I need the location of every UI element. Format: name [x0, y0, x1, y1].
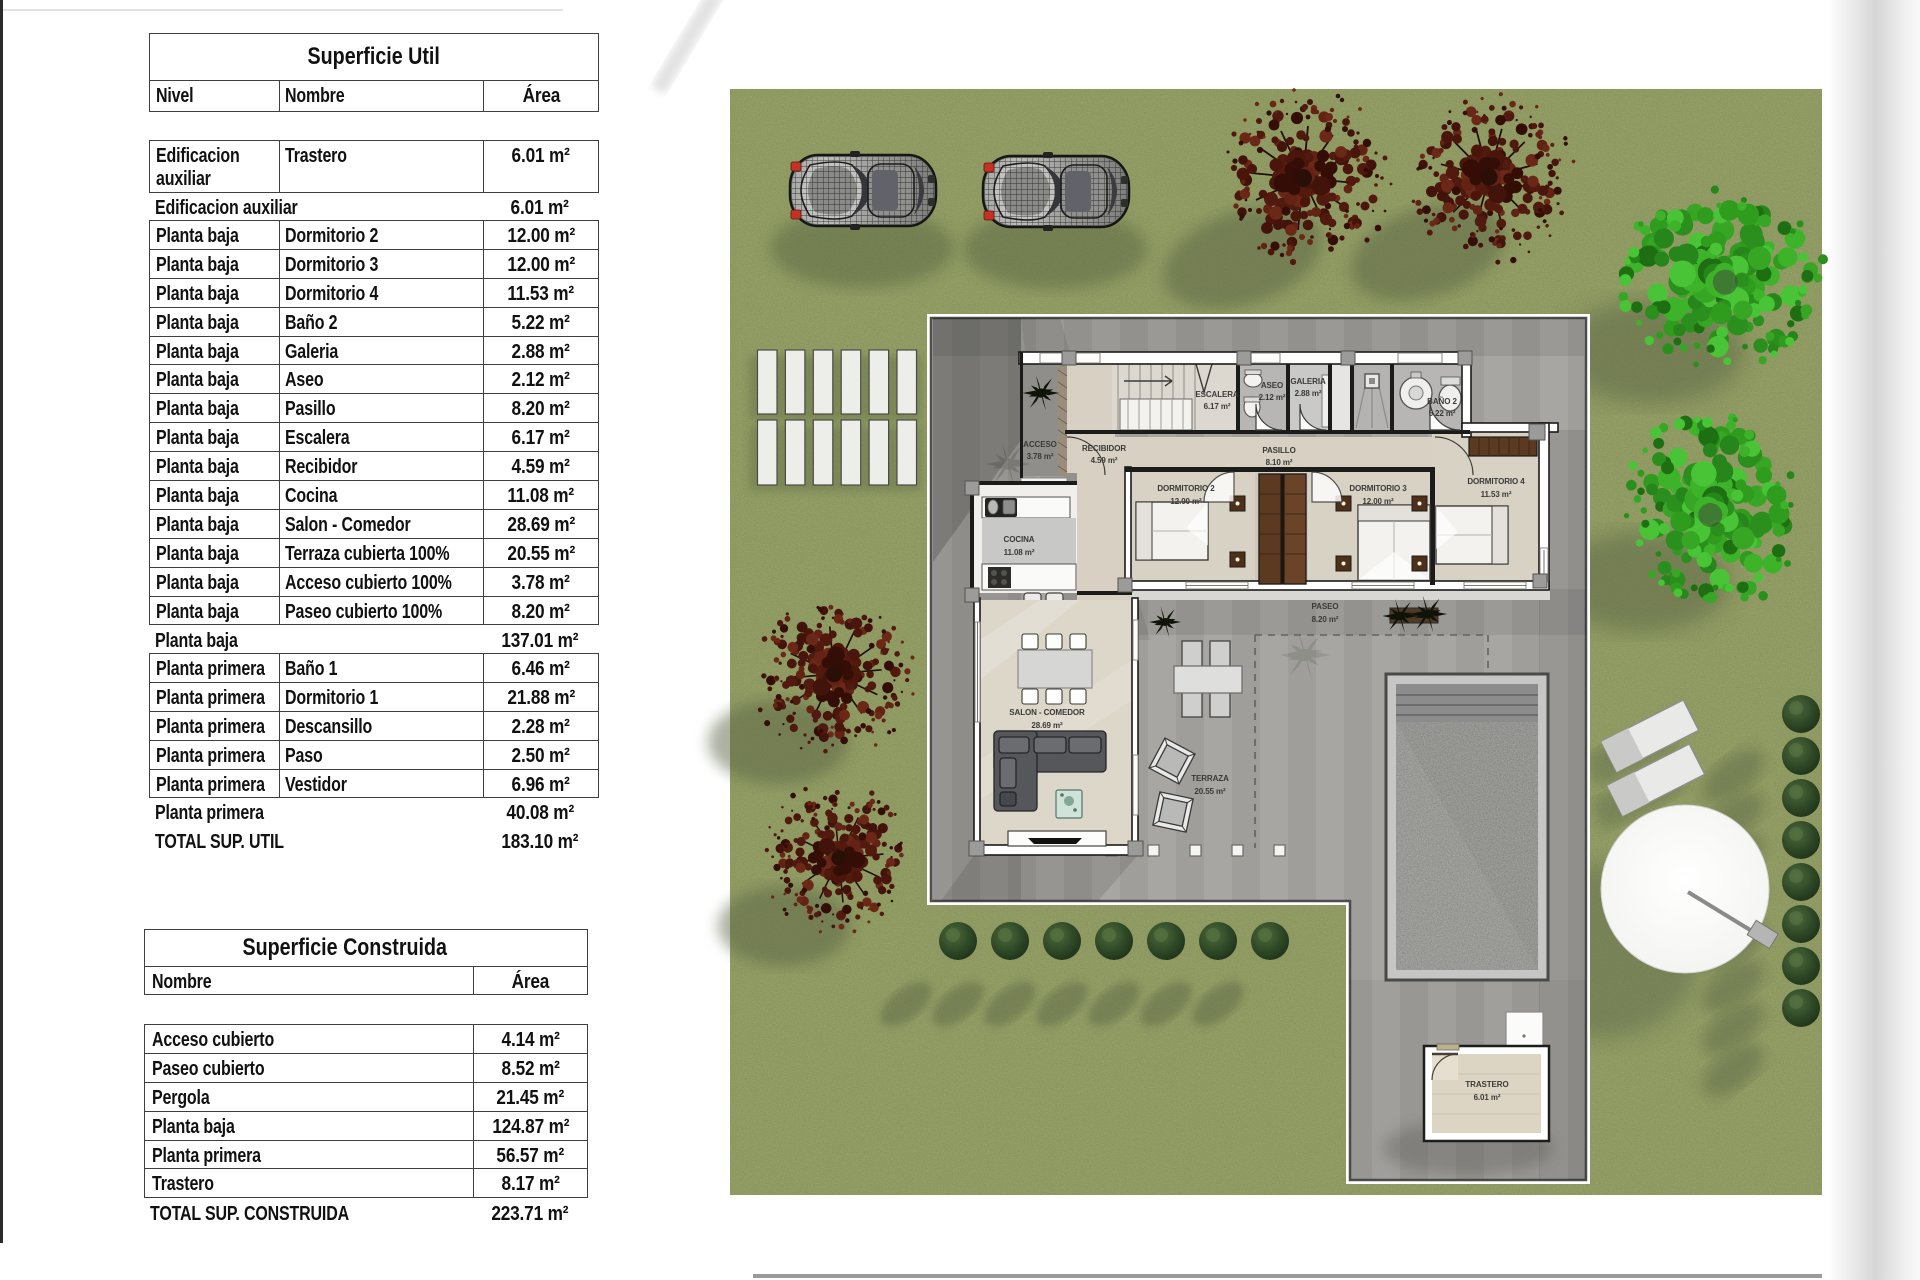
svg-text:SALON - COMEDOR: SALON - COMEDOR: [1009, 708, 1085, 717]
svg-text:11.53 m²: 11.53 m²: [1481, 490, 1512, 499]
svg-text:ACCESO: ACCESO: [1023, 440, 1057, 449]
svg-text:20.55 m²: 20.55 m²: [1194, 787, 1226, 796]
svg-text:PASEO: PASEO: [1312, 602, 1339, 611]
svg-text:3.78 m²: 3.78 m²: [1027, 452, 1054, 461]
svg-text:11.08 m²: 11.08 m²: [1004, 548, 1035, 557]
svg-text:ESCALERA: ESCALERA: [1195, 390, 1239, 399]
svg-text:ASEO: ASEO: [1261, 381, 1283, 390]
svg-text:8.10 m²: 8.10 m²: [1266, 458, 1293, 467]
svg-text:PASILLO: PASILLO: [1262, 446, 1295, 455]
svg-text:6.01 m²: 6.01 m²: [1474, 1093, 1501, 1102]
svg-text:TRASTERO: TRASTERO: [1465, 1080, 1508, 1089]
svg-text:BAÑO 2: BAÑO 2: [1427, 397, 1457, 406]
svg-text:6.17 m²: 6.17 m²: [1204, 402, 1231, 411]
svg-text:COCINA: COCINA: [1004, 535, 1035, 544]
svg-text:RECIBIDOR: RECIBIDOR: [1082, 444, 1126, 453]
svg-text:5.22 m²: 5.22 m²: [1429, 409, 1456, 418]
svg-text:DORMITORIO 3: DORMITORIO 3: [1349, 484, 1407, 493]
svg-text:4.59 m²: 4.59 m²: [1091, 456, 1118, 465]
svg-text:12.00 m²: 12.00 m²: [1170, 497, 1202, 506]
svg-text:TERRAZA: TERRAZA: [1191, 774, 1229, 783]
svg-text:DORMITORIO 2: DORMITORIO 2: [1157, 484, 1215, 493]
svg-text:DORMITORIO 4: DORMITORIO 4: [1467, 477, 1525, 486]
svg-text:GALERIA: GALERIA: [1290, 377, 1326, 386]
svg-text:8.20 m²: 8.20 m²: [1312, 615, 1339, 624]
svg-text:2.88 m²: 2.88 m²: [1295, 389, 1322, 398]
svg-text:28.69 m²: 28.69 m²: [1031, 721, 1063, 730]
svg-text:2.12 m²: 2.12 m²: [1259, 393, 1286, 402]
svg-text:12.00 m²: 12.00 m²: [1362, 497, 1394, 506]
